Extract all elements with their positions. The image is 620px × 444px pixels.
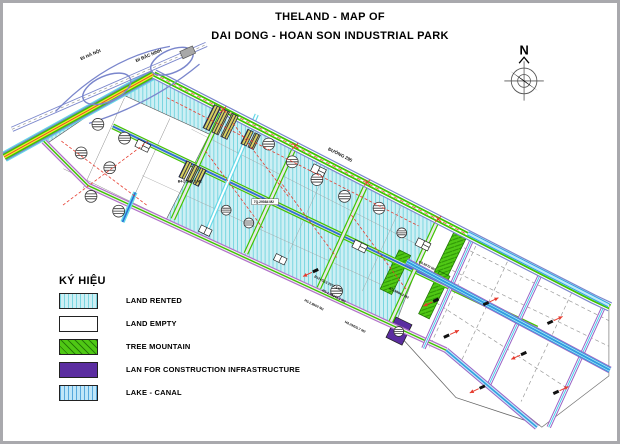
parcel-label-b4-2: B4-2 1997.2 M2 [178,180,202,184]
land-rented-swatch [59,293,98,309]
legend-item-land-rented: LAND RENTED [59,293,300,308]
construction-swatch [59,362,98,378]
legend: KÝ HIỆU LAND RENTED LAND EMPTY TREE MOUN… [59,275,300,408]
tree-mountain-label: TREE MOUNTAIN [126,342,191,351]
construction-label: LAN FOR CONSTRUCTION INFRASTRUCTURE [126,365,300,374]
land-empty-label: LAND EMPTY [126,319,177,328]
legend-item-lake-canal: LAKE - CANAL [59,385,300,400]
compass-n-label: N [519,42,528,57]
land-empty-swatch [59,316,98,332]
lake-canal-swatch [59,385,98,401]
lake-canal-label: LAKE - CANAL [126,388,182,397]
map-document: THELAND - MAP OF DAI DONG - HOAN SON IND… [0,0,620,444]
legend-item-construction: LAN FOR CONSTRUCTION INFRASTRUCTURE [59,362,300,377]
legend-item-land-empty: LAND EMPTY [59,316,300,331]
land-rented-label: LAND RENTED [126,296,182,305]
legend-title: KÝ HIỆU [59,275,300,287]
svg-text:7Q.29084 M2: 7Q.29084 M2 [254,200,274,204]
tree-mountain-swatch [59,339,98,355]
north-compass: N [504,42,543,100]
parcel-label-7q: 7Q.29084 M2 [252,199,279,205]
parcel-label-h3-2: H3-2.8600 M2 [304,298,325,311]
legend-item-tree-mountain: TREE MOUNTAIN [59,339,300,354]
parcel-label-h4: H4.29425.7 M2 [344,320,366,334]
road-label-di-ha-noi: ĐI HÀ NỘI [79,46,102,61]
